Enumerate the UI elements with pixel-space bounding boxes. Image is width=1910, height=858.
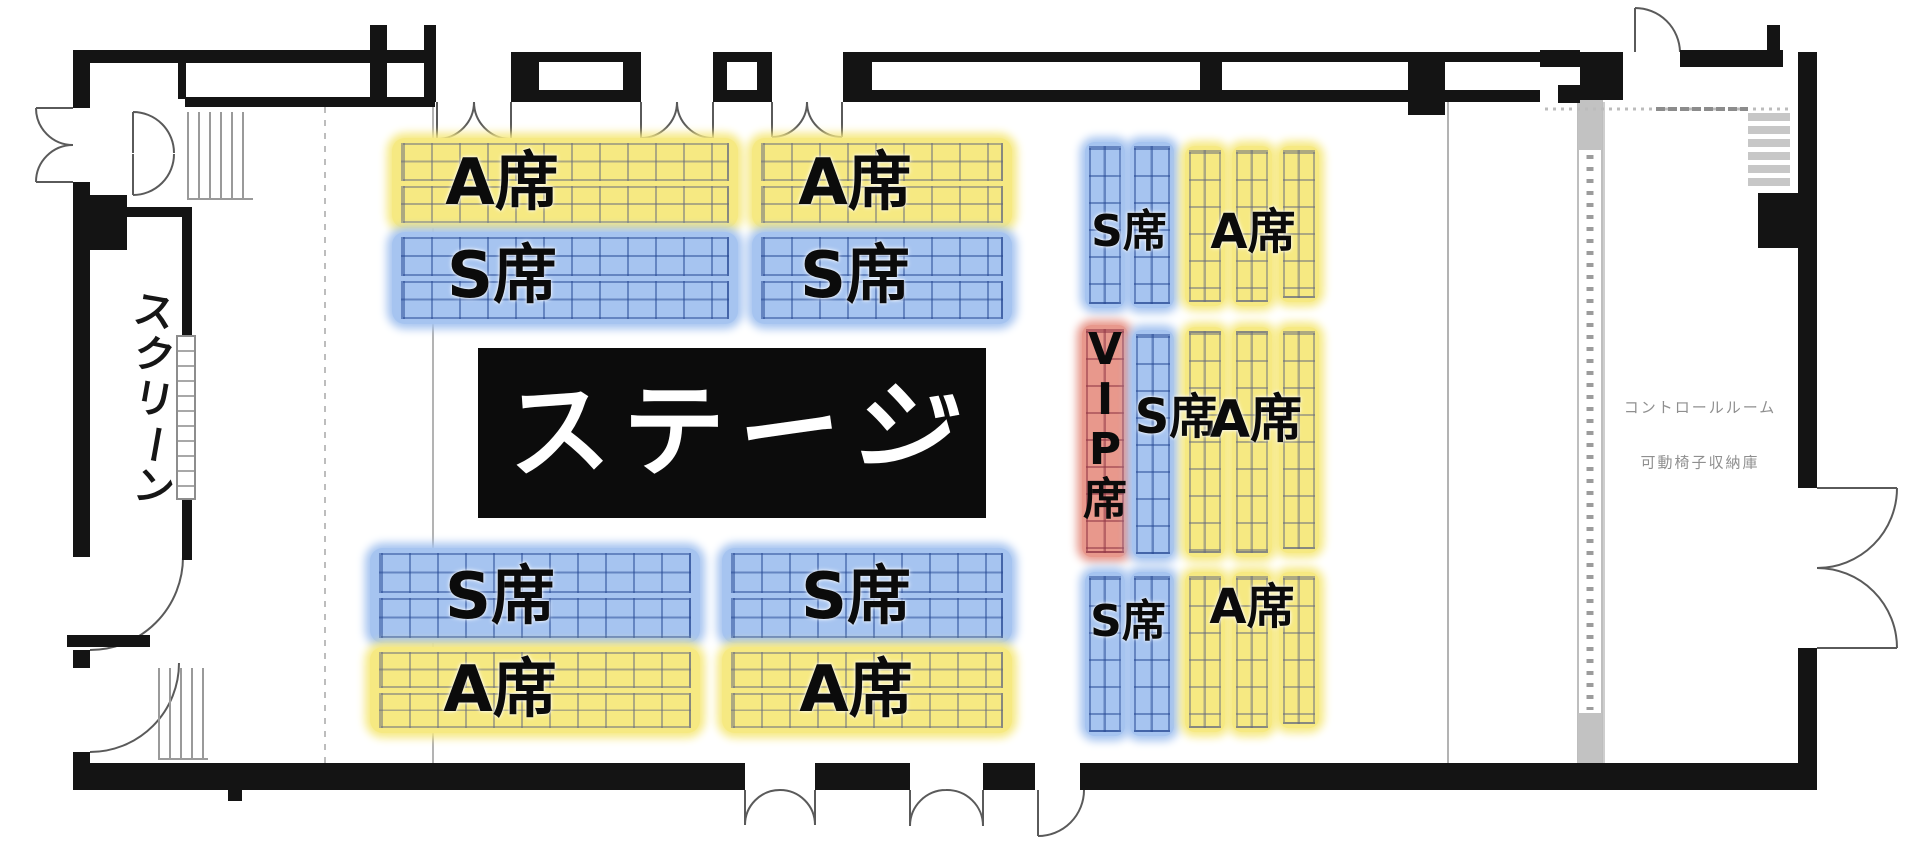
partition-stack-bottom (1578, 713, 1602, 763)
wall-hollow-segment (539, 52, 623, 102)
screen-label: スクリーン (128, 292, 180, 508)
double-door-top-3 (772, 102, 842, 137)
wall-left (73, 52, 90, 108)
wall-segment (843, 52, 872, 102)
label-char: テ (623, 382, 725, 484)
seat-label-a: A席 (1210, 208, 1295, 256)
wall-post (1767, 25, 1780, 53)
seat-label-s: S席 (445, 565, 555, 629)
wall-bar (127, 207, 189, 217)
wall-left (73, 650, 90, 668)
label-char: リ (131, 377, 177, 423)
double-door-inner-vestibule (133, 112, 174, 195)
seat-label-a: A席 (798, 151, 912, 215)
pillar (1758, 193, 1798, 248)
wall-segment (1580, 52, 1623, 100)
seat-block-front-upper-left-a[interactable] (392, 138, 738, 228)
screen-wall-upper (182, 207, 192, 335)
label-char: ー (131, 421, 177, 467)
label-char: ス (131, 289, 177, 335)
screen-wall-lower (182, 500, 192, 560)
pillar (75, 195, 127, 250)
label-char: ー (732, 375, 847, 490)
seat-label-s: S席 (800, 244, 910, 308)
seat-label-a: A席 (443, 658, 557, 722)
wall-right (1798, 52, 1817, 488)
seat-label-a: A席 (1210, 394, 1302, 446)
seat-label-vip: VIP席 (1080, 328, 1130, 522)
seat-label-s: S席 (801, 565, 911, 629)
wall-segment (1540, 50, 1580, 67)
seat-block-front-upper-left-s[interactable] (392, 232, 738, 324)
wall-step (1558, 85, 1580, 103)
single-door-bottom-3 (1038, 790, 1084, 836)
wall-bottom (815, 763, 910, 790)
wall-post (178, 63, 186, 99)
label-char: V (1088, 328, 1122, 372)
steps-top-right (1748, 113, 1790, 189)
partition-stack-top (1578, 100, 1602, 150)
seat-label-s: S席 (447, 244, 557, 308)
staircase-bottom-left (158, 668, 208, 760)
double-door-top-2 (641, 102, 713, 138)
double-door-bottom-1 (745, 790, 815, 825)
wall-bottom (73, 763, 745, 790)
wall-bottom (1080, 763, 1817, 790)
wall-segment (1200, 52, 1222, 102)
wall-hollow-segment (872, 52, 1200, 102)
double-door-right (1817, 488, 1897, 648)
wall-segment (713, 52, 727, 102)
wall-segment (623, 52, 641, 102)
wall-segment (511, 52, 539, 102)
double-door-bottom-2 (910, 790, 983, 826)
wall-post (370, 25, 387, 102)
wall-hollow-segment (727, 52, 757, 102)
control-room-label: コントロールルーム (1624, 397, 1777, 418)
wall-stub (228, 790, 242, 801)
label-char: 席 (1083, 478, 1127, 522)
seat-label-s: S席 (1135, 393, 1218, 441)
stage-label: ステージ (500, 382, 964, 484)
seat-label-a: A席 (799, 658, 913, 722)
single-door-control-room (1635, 8, 1680, 52)
label-char: ジ (844, 371, 968, 495)
seat-label-a: A席 (1209, 583, 1294, 631)
wall-hall-top-left (185, 97, 435, 107)
seat-label-s: S席 (1090, 600, 1166, 644)
wall-segment (1408, 52, 1445, 115)
double-door-top-1 (437, 102, 511, 139)
staircase-top-left (187, 112, 253, 200)
label-char: ン (131, 465, 177, 511)
seat-label-a: A席 (445, 151, 559, 215)
label-char: ス (504, 379, 613, 488)
label-char: ク (130, 332, 177, 379)
label-char: I (1097, 378, 1113, 422)
wall-hollow-segment (1222, 52, 1408, 102)
chair-storage-label: 可動椅子収納庫 (1640, 452, 1759, 473)
wall-bottom (983, 763, 1035, 790)
seat-label-s: S席 (1091, 210, 1167, 254)
wall-bar (67, 635, 150, 647)
stage-area: ステージ (478, 348, 986, 518)
wall-post (424, 25, 436, 102)
wall-segment (757, 52, 772, 102)
floor-plan: ステージ A席 S席 A席 S席 S席 A席 S席 A席 S席 A席 S席 A席… (0, 0, 1910, 858)
double-door-left-vestibule (36, 108, 73, 182)
wall-hollow-segment (1445, 52, 1540, 102)
label-char: P (1089, 428, 1121, 472)
